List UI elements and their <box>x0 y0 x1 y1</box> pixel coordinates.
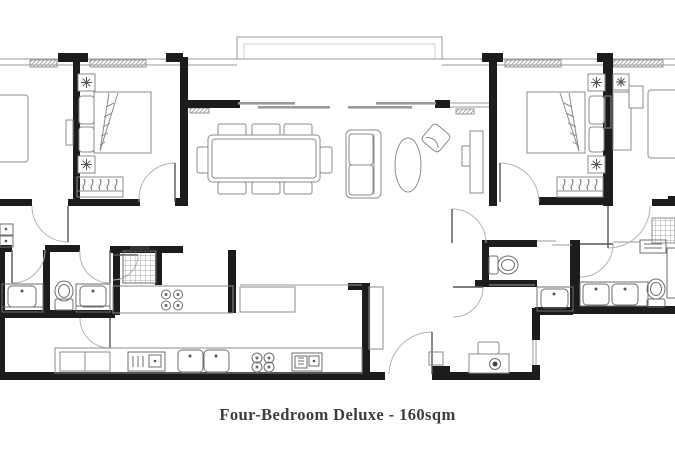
dining-chair <box>197 147 209 173</box>
bedroom-far-right <box>605 74 675 158</box>
bedroom-left <box>77 74 151 197</box>
pillow <box>589 127 604 152</box>
kitchen <box>55 246 362 373</box>
lamp-icon <box>616 77 626 87</box>
cooktop-icon <box>252 353 274 372</box>
toilet <box>489 256 518 274</box>
coffee-table <box>395 138 421 192</box>
chair <box>478 342 499 354</box>
floor-plan: Four-Bedroom Deluxe - 160sqm <box>0 0 675 450</box>
dining-set <box>197 124 332 194</box>
refrigerator <box>123 246 156 283</box>
vanity-sink <box>76 284 110 312</box>
cabinet-door <box>85 352 110 371</box>
doors <box>12 163 650 374</box>
dining-chair <box>284 182 312 194</box>
sofa <box>346 130 381 198</box>
bathroom-right <box>489 218 675 311</box>
living-dining <box>197 123 483 198</box>
sink-unit <box>128 352 165 371</box>
pillow <box>79 96 94 124</box>
desk <box>469 354 509 373</box>
balcony <box>237 37 442 59</box>
dining-chair <box>320 147 332 173</box>
counter <box>113 286 233 313</box>
dining-chair <box>284 124 312 136</box>
bed <box>648 90 675 158</box>
bathroom-left <box>0 224 110 312</box>
sink-unit <box>292 353 322 371</box>
double-vanity <box>580 282 648 306</box>
bedroom-right <box>527 74 605 197</box>
bedroom-far-left <box>0 95 73 162</box>
foyer-closet <box>369 287 383 349</box>
floor-plan-drawing <box>0 0 675 450</box>
armchair <box>421 123 452 154</box>
bed-sheet-fold <box>100 93 118 151</box>
floor-plan-caption: Four-Bedroom Deluxe - 160sqm <box>0 405 675 425</box>
pillow <box>79 127 94 152</box>
entry-step <box>429 352 443 365</box>
vanity-sink <box>2 284 43 312</box>
bed-sheet-fold <box>560 93 579 151</box>
tv-panel <box>66 120 73 145</box>
closet <box>557 177 603 197</box>
dining-chair <box>218 182 246 194</box>
toilet <box>647 279 665 307</box>
toilet <box>55 281 73 310</box>
cabinet-door <box>60 352 85 371</box>
study-room <box>469 342 509 373</box>
cabinet <box>240 287 295 312</box>
double-sink <box>178 350 229 372</box>
cabinet <box>652 218 675 243</box>
dining-chair <box>218 124 246 136</box>
pillow <box>589 96 604 124</box>
bathtub-edge <box>667 248 675 298</box>
cooktop-icon <box>162 290 183 310</box>
dining-chair <box>252 124 280 136</box>
dining-chair <box>252 182 280 194</box>
desk <box>613 92 631 150</box>
tv-console <box>462 131 483 193</box>
walls <box>0 53 675 380</box>
desk-chair <box>629 86 643 108</box>
windows <box>30 60 663 114</box>
bed <box>0 95 28 162</box>
closet <box>77 177 123 197</box>
dining-table <box>208 135 320 182</box>
